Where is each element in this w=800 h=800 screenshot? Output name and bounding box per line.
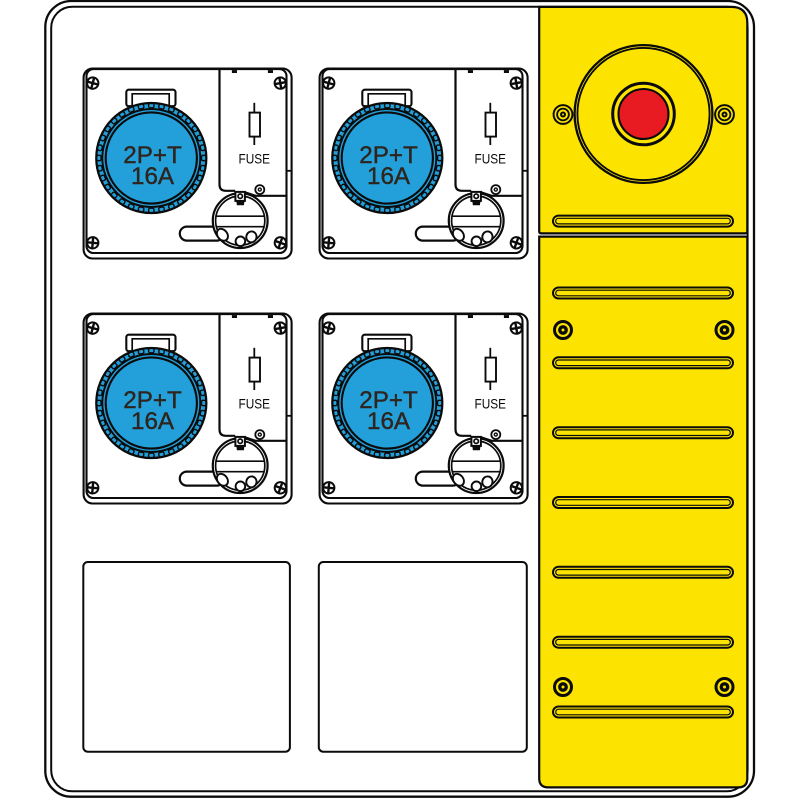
svg-text:FUSE: FUSE	[239, 151, 271, 167]
svg-text:16A: 16A	[367, 163, 411, 190]
svg-text:FUSE: FUSE	[475, 396, 507, 412]
svg-text:16A: 16A	[131, 163, 175, 190]
svg-text:FUSE: FUSE	[475, 151, 507, 167]
svg-text:FUSE: FUSE	[239, 396, 271, 412]
svg-text:16A: 16A	[367, 408, 411, 435]
svg-text:16A: 16A	[131, 408, 175, 435]
